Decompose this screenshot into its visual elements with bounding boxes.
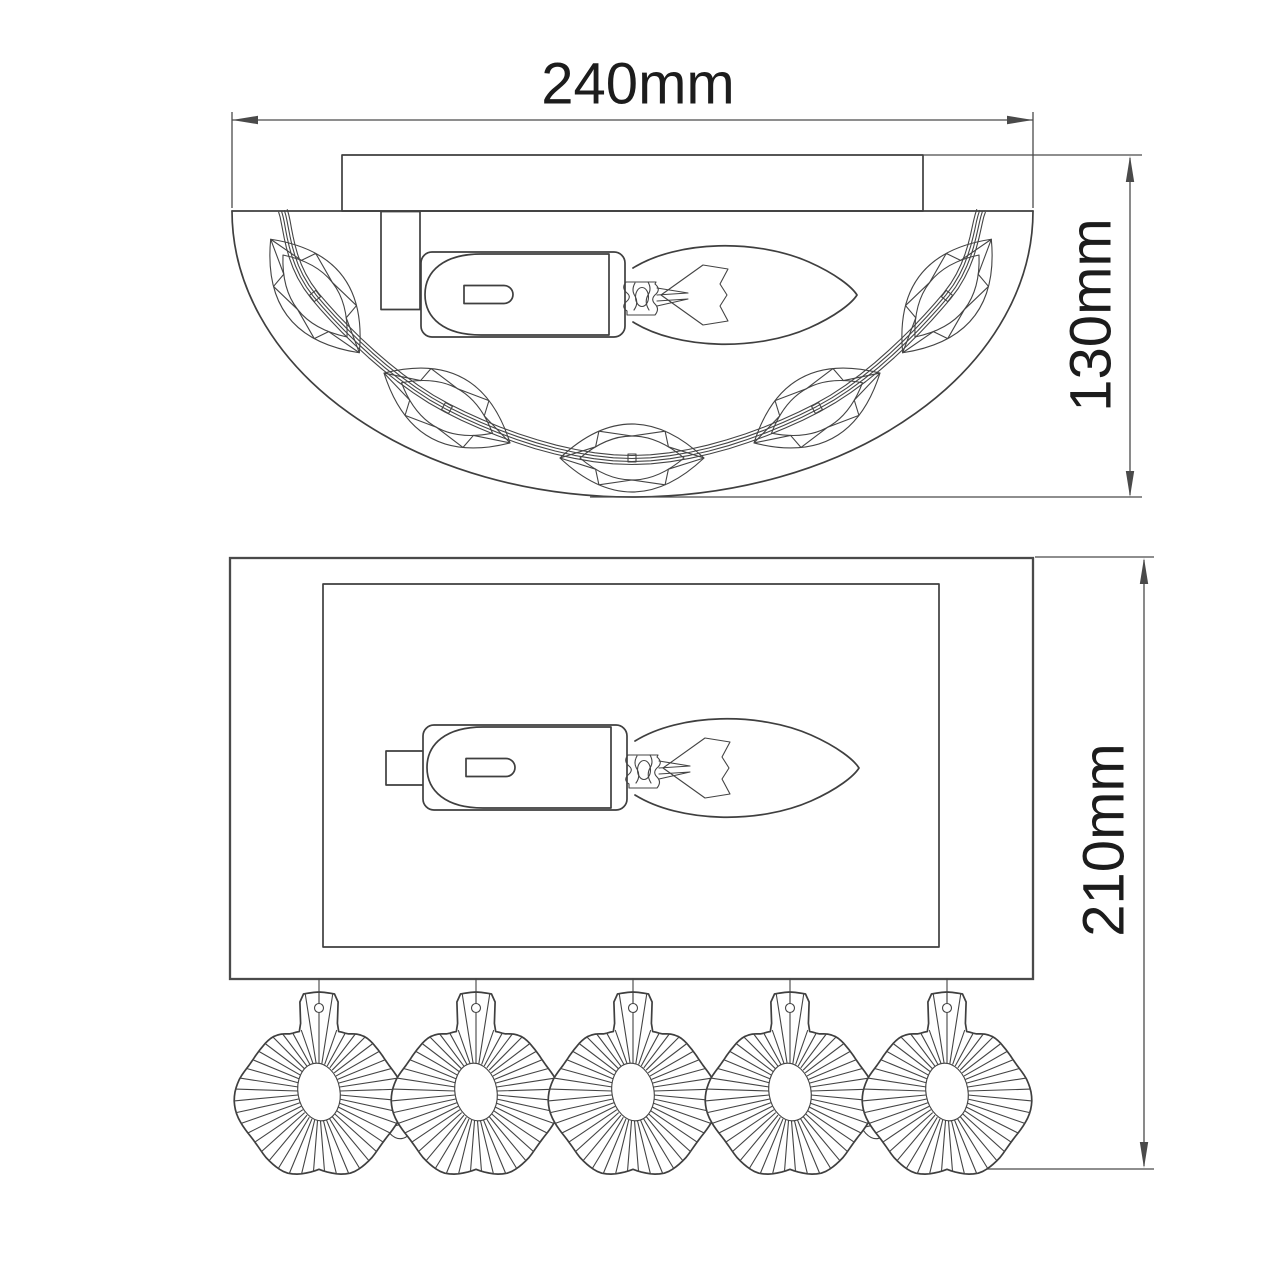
bulb-flame xyxy=(661,265,728,325)
crystal-hole xyxy=(472,1004,481,1013)
arrow-down-icon xyxy=(1126,471,1134,497)
lamp-assembly-front xyxy=(423,719,859,817)
oval-crystals xyxy=(244,218,1018,492)
crystal-hole xyxy=(786,1004,795,1013)
fan-crystal xyxy=(391,979,561,1174)
arrow-up-icon xyxy=(1126,156,1134,182)
marquise-crystal xyxy=(368,343,527,472)
fan-crystal xyxy=(705,979,875,1174)
mounting-plate xyxy=(342,155,923,211)
shade-front-panel xyxy=(323,584,939,947)
bulb-base xyxy=(624,282,659,315)
fan-crystal xyxy=(234,979,404,1174)
lamp-assembly xyxy=(421,246,857,344)
candle-bulb-glass xyxy=(633,246,857,344)
crystal-hole xyxy=(315,1004,324,1013)
height-dimension-label: 210mm xyxy=(1071,743,1138,936)
technical-drawing-page: 240mm 130mm 210mm xyxy=(0,0,1280,1279)
width-dimension-label: 240mm xyxy=(541,51,734,118)
depth-dimension-label: 130mm xyxy=(1058,218,1125,411)
socket-stub xyxy=(386,751,424,785)
fan-crystal xyxy=(548,979,718,1174)
chain-strand xyxy=(287,210,976,456)
arrow-up-icon xyxy=(1140,558,1148,584)
socket-bracket xyxy=(381,212,420,310)
crystal-hole xyxy=(943,1004,952,1013)
fan-crystal-drops xyxy=(234,979,1032,1174)
arrow-right-icon xyxy=(1007,116,1033,124)
socket-housing xyxy=(421,252,625,337)
marquise-crystal xyxy=(738,343,897,472)
technical-drawing xyxy=(0,0,1280,1279)
fan-crystal xyxy=(862,979,1032,1174)
crystal-hole xyxy=(629,1004,638,1013)
front-view xyxy=(230,557,1154,1174)
arrow-down-icon xyxy=(1140,1142,1148,1168)
top-view xyxy=(232,112,1142,497)
chain-strand xyxy=(284,211,979,459)
arrow-left-icon xyxy=(232,116,258,124)
dimension-width xyxy=(232,112,1033,208)
